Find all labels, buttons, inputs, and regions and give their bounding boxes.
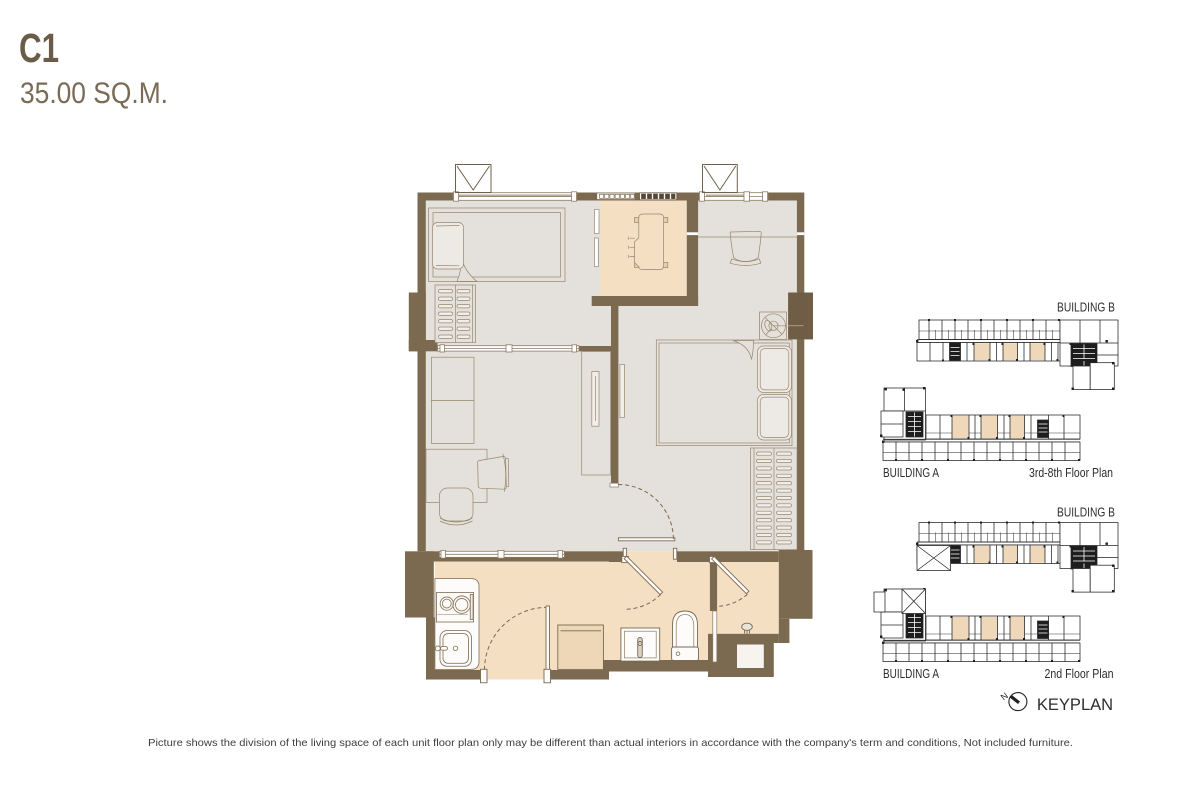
svg-text:2nd Floor Plan: 2nd Floor Plan [1045,666,1114,681]
svg-text:3rd-8th Floor Plan: 3rd-8th Floor Plan [1029,465,1113,480]
svg-text:BUILDING B: BUILDING B [1057,300,1115,315]
svg-text:BUILDING A: BUILDING A [883,666,939,681]
svg-text:35.00 SQ.M.: 35.00 SQ.M. [20,77,168,110]
svg-text:BUILDING B: BUILDING B [1057,505,1115,520]
svg-text:C1: C1 [19,25,59,71]
svg-text:KEYPLAN: KEYPLAN [1037,695,1113,714]
svg-text:Picture shows the division of: Picture shows the division of the living… [148,738,1073,749]
svg-text:N: N [999,690,1010,702]
svg-text:BUILDING A: BUILDING A [883,465,939,480]
